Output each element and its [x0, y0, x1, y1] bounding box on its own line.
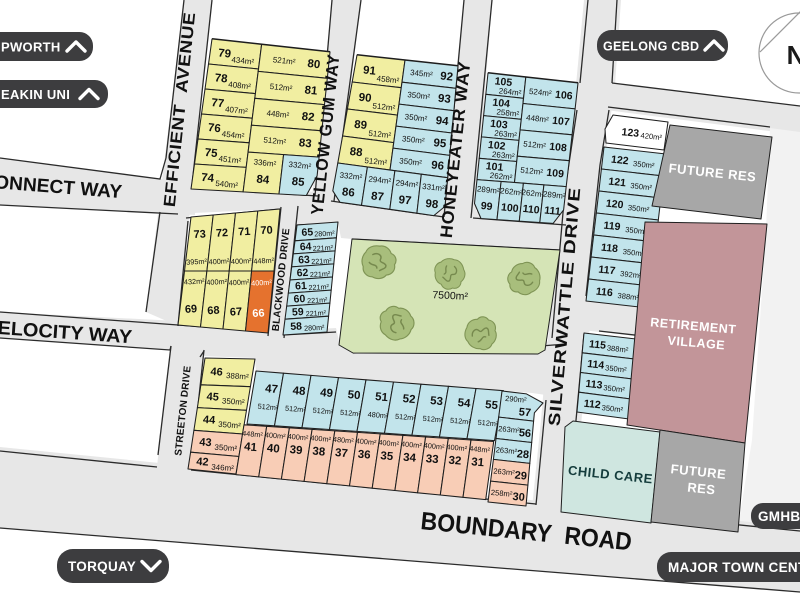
svg-text:350m²: 350m² — [214, 443, 238, 454]
svg-text:N: N — [787, 40, 800, 70]
svg-text:92: 92 — [440, 70, 454, 83]
svg-text:388m²: 388m² — [226, 371, 250, 382]
svg-text:93: 93 — [437, 93, 451, 106]
svg-text:263m²: 263m² — [498, 424, 521, 435]
svg-text:400m²: 400m² — [231, 256, 253, 266]
svg-text:RES: RES — [687, 480, 717, 498]
svg-text:120: 120 — [605, 198, 624, 212]
svg-text:54: 54 — [457, 397, 471, 410]
svg-text:400m²: 400m² — [287, 432, 309, 443]
svg-text:258m²: 258m² — [491, 488, 514, 499]
svg-text:90: 90 — [358, 92, 372, 105]
svg-text:111: 111 — [544, 204, 562, 218]
svg-text:512m²: 512m² — [285, 404, 307, 415]
svg-text:122: 122 — [610, 154, 629, 168]
svg-text:116: 116 — [595, 286, 613, 300]
svg-text:346m²: 346m² — [211, 463, 235, 474]
svg-text:109: 109 — [546, 167, 565, 181]
svg-text:118: 118 — [600, 242, 618, 256]
svg-text:56: 56 — [518, 427, 531, 440]
svg-text:32: 32 — [448, 455, 462, 468]
svg-text:84: 84 — [256, 174, 271, 187]
svg-text:512m²: 512m² — [312, 406, 334, 417]
svg-text:72: 72 — [216, 227, 229, 240]
svg-text:432m²: 432m² — [184, 276, 206, 286]
svg-text:46: 46 — [210, 366, 223, 379]
svg-text:34: 34 — [403, 452, 417, 465]
svg-text:512m²: 512m² — [395, 412, 417, 423]
svg-text:290m²: 290m² — [505, 394, 528, 405]
svg-text:512m²: 512m² — [477, 418, 499, 429]
svg-text:512m²: 512m² — [257, 402, 279, 413]
svg-text:106: 106 — [554, 89, 573, 103]
svg-text:400m²: 400m² — [206, 277, 228, 287]
svg-text:98: 98 — [425, 198, 440, 211]
svg-text:35: 35 — [380, 450, 394, 463]
svg-text:448m²: 448m² — [242, 429, 264, 440]
svg-text:85: 85 — [291, 176, 306, 189]
svg-text:65: 65 — [301, 226, 313, 239]
svg-text:48: 48 — [292, 385, 306, 398]
svg-text:30: 30 — [512, 491, 525, 504]
svg-text:400m²: 400m² — [378, 438, 400, 449]
svg-text:73: 73 — [193, 228, 206, 241]
svg-text:448m²: 448m² — [469, 444, 491, 455]
svg-text:79: 79 — [218, 47, 232, 60]
svg-text:400m²: 400m² — [251, 278, 273, 288]
svg-text:263m²: 263m² — [495, 445, 518, 456]
svg-text:67: 67 — [230, 306, 243, 319]
svg-text:50: 50 — [347, 389, 361, 402]
svg-text:36: 36 — [357, 449, 371, 462]
svg-text:63: 63 — [298, 254, 310, 267]
svg-text:400m²: 400m² — [208, 256, 230, 266]
svg-text:89: 89 — [354, 119, 368, 132]
svg-text:61: 61 — [295, 280, 307, 293]
svg-text:400m²: 400m² — [423, 441, 445, 452]
svg-text:107: 107 — [552, 115, 571, 129]
svg-text:59: 59 — [292, 306, 304, 319]
svg-text:280m²: 280m² — [304, 323, 325, 333]
svg-text:TORQUAY: TORQUAY — [68, 559, 136, 574]
svg-text:EAKIN UNI: EAKIN UNI — [1, 87, 70, 102]
svg-text:71: 71 — [238, 226, 251, 239]
svg-text:47: 47 — [265, 383, 279, 396]
svg-text:70: 70 — [260, 224, 273, 237]
svg-text:74: 74 — [201, 172, 216, 185]
svg-text:33: 33 — [425, 453, 439, 466]
svg-text:400m²: 400m² — [310, 433, 332, 444]
svg-text:MAJOR TOWN CENTRE: MAJOR TOWN CENTRE — [668, 560, 800, 575]
svg-text:68: 68 — [207, 305, 220, 318]
svg-text:97: 97 — [398, 194, 412, 207]
svg-text:123: 123 — [621, 126, 640, 140]
svg-text:117: 117 — [598, 264, 616, 278]
svg-text:86: 86 — [341, 186, 355, 199]
svg-text:64: 64 — [299, 241, 311, 254]
svg-text:512m²: 512m² — [422, 414, 444, 425]
svg-text:GEELONG CBD: GEELONG CBD — [603, 40, 699, 54]
svg-text:81: 81 — [304, 84, 319, 97]
svg-text:62: 62 — [296, 267, 308, 280]
svg-text:512m²: 512m² — [450, 416, 472, 427]
svg-text:69: 69 — [185, 303, 198, 316]
svg-text:480m²: 480m² — [367, 410, 389, 421]
svg-text:57: 57 — [518, 406, 531, 419]
svg-text:91: 91 — [362, 64, 377, 77]
svg-text:448m²: 448m² — [253, 256, 275, 266]
svg-text:395m²: 395m² — [186, 257, 208, 267]
svg-text:108: 108 — [549, 141, 568, 155]
svg-text:263m²: 263m² — [493, 467, 516, 478]
svg-text:100: 100 — [500, 201, 519, 215]
svg-text:GMHBA STA: GMHBA STA — [758, 509, 800, 524]
svg-text:110: 110 — [522, 203, 540, 217]
svg-text:77: 77 — [211, 97, 225, 110]
svg-text:39: 39 — [289, 444, 303, 457]
svg-text:400m²: 400m² — [446, 442, 468, 453]
svg-text:400m²: 400m² — [355, 436, 377, 447]
svg-text:45: 45 — [206, 391, 219, 404]
svg-text:96: 96 — [431, 159, 445, 172]
svg-text:400m²: 400m² — [265, 430, 287, 441]
svg-text:119: 119 — [603, 220, 621, 234]
svg-text:350m²: 350m² — [218, 420, 242, 431]
svg-text:112: 112 — [583, 398, 601, 412]
svg-text:114: 114 — [587, 358, 605, 372]
svg-text:280m²: 280m² — [314, 228, 335, 238]
svg-text:28: 28 — [516, 448, 529, 461]
svg-text:42: 42 — [196, 456, 209, 469]
svg-text:38: 38 — [312, 446, 326, 459]
svg-text:53: 53 — [430, 395, 444, 408]
svg-text:83: 83 — [298, 137, 312, 150]
svg-text:43: 43 — [199, 436, 212, 449]
svg-text:49: 49 — [320, 387, 334, 400]
svg-text:51: 51 — [375, 391, 389, 404]
svg-text:88: 88 — [349, 146, 364, 159]
svg-text:75: 75 — [204, 147, 219, 160]
svg-text:44: 44 — [203, 414, 217, 427]
svg-text:121: 121 — [608, 176, 627, 190]
svg-text:113: 113 — [585, 378, 603, 392]
svg-text:60: 60 — [293, 293, 305, 306]
svg-text:480m²: 480m² — [333, 435, 355, 446]
svg-text:40: 40 — [266, 443, 280, 456]
svg-text:78: 78 — [214, 72, 229, 85]
svg-text:99: 99 — [480, 200, 493, 213]
svg-text:37: 37 — [334, 447, 348, 460]
svg-text:82: 82 — [301, 111, 315, 124]
svg-text:80: 80 — [307, 58, 321, 71]
svg-text:400m²: 400m² — [401, 439, 423, 450]
svg-text:400m²: 400m² — [229, 277, 251, 287]
svg-text:58: 58 — [290, 320, 302, 333]
svg-text:94: 94 — [435, 115, 450, 128]
svg-text:7500m²: 7500m² — [432, 289, 469, 303]
svg-text:31: 31 — [471, 456, 485, 469]
svg-text:PWORTH: PWORTH — [1, 40, 61, 55]
svg-text:76: 76 — [207, 122, 221, 135]
svg-text:87: 87 — [370, 190, 384, 203]
svg-text:52: 52 — [402, 393, 416, 406]
svg-text:29: 29 — [514, 470, 527, 483]
svg-text:41: 41 — [244, 441, 258, 454]
svg-text:350m²: 350m² — [222, 396, 246, 407]
svg-text:66: 66 — [252, 307, 265, 320]
svg-text:115: 115 — [588, 338, 606, 352]
svg-text:55: 55 — [485, 399, 499, 412]
svg-text:512m²: 512m² — [340, 408, 362, 419]
